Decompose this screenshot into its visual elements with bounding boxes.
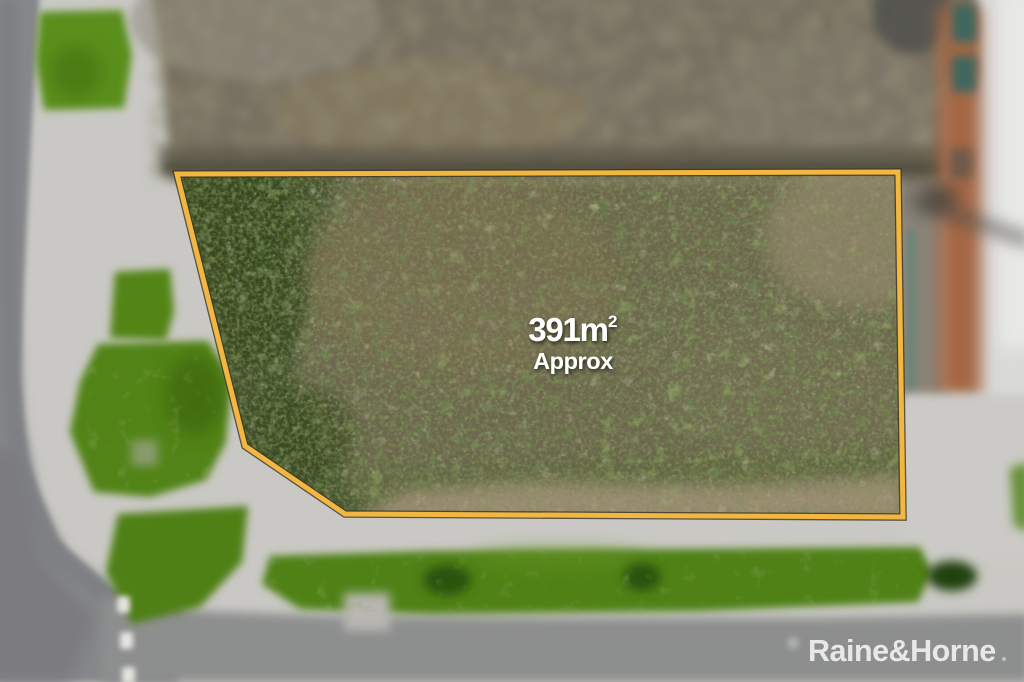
svg-text:2: 2 (608, 312, 617, 331)
svg-text:Raine&Horne: Raine&Horne (808, 634, 996, 668)
svg-text:391m: 391m (528, 311, 608, 348)
svg-text:Approx: Approx (533, 348, 613, 374)
